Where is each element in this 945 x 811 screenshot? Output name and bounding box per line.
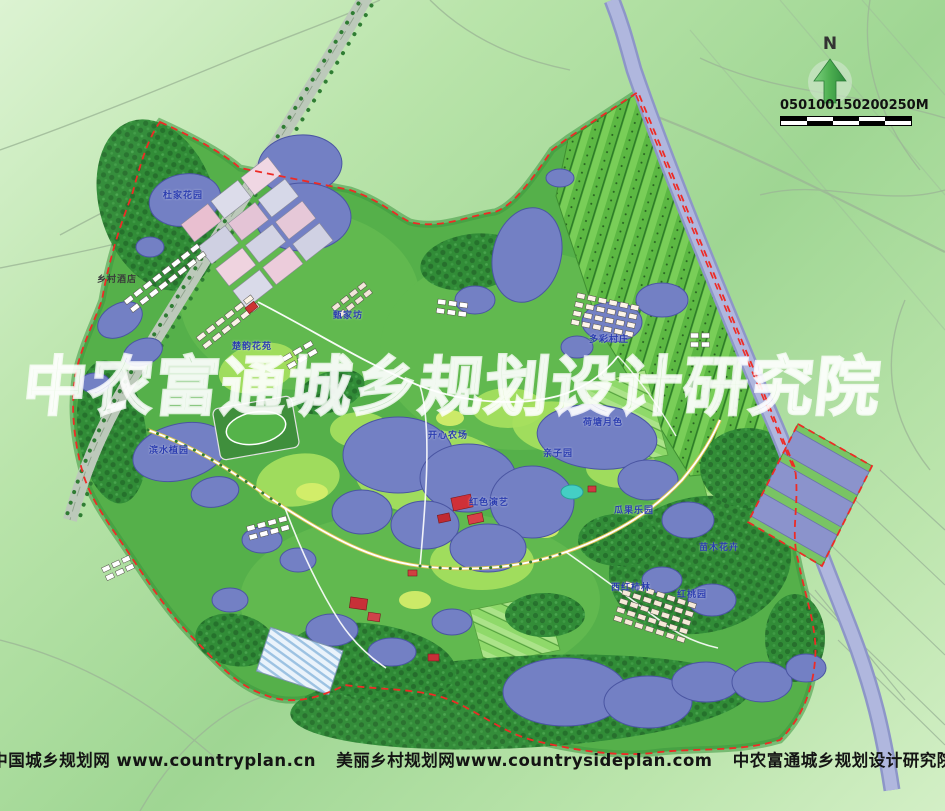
teal-pool	[561, 485, 583, 499]
scale-tick: 100	[807, 98, 834, 113]
scale-tick: 50	[789, 98, 807, 113]
footer-org: 中农富通城乡规划设计研究院	[733, 751, 945, 770]
scale-tick-labels: 050100150200250M	[780, 98, 918, 113]
north-label: N	[806, 36, 854, 53]
footer-caption: 中国城乡规划网 www.countryplan.cn 美丽乡村规划网www.co…	[0, 747, 945, 771]
footer-site1: 中国城乡规划网 www.countryplan.cn	[0, 751, 316, 770]
scale-tick: 250M	[889, 98, 929, 113]
scale-bar-segments	[780, 116, 912, 126]
scale-bar: 050100150200250M	[780, 98, 918, 126]
scale-tick: 150	[834, 98, 861, 113]
scale-tick: 0	[780, 98, 789, 113]
scale-tick: 200	[861, 98, 888, 113]
footer-site2: 美丽乡村规划网www.countrysideplan.com	[336, 751, 712, 770]
planning-map-canvas: 杜家花园乡村酒店甄家坊楚韵花苑多彩村庄荷塘月色开心农场亲子园红色演艺瓜果乐园苗木…	[0, 0, 945, 811]
